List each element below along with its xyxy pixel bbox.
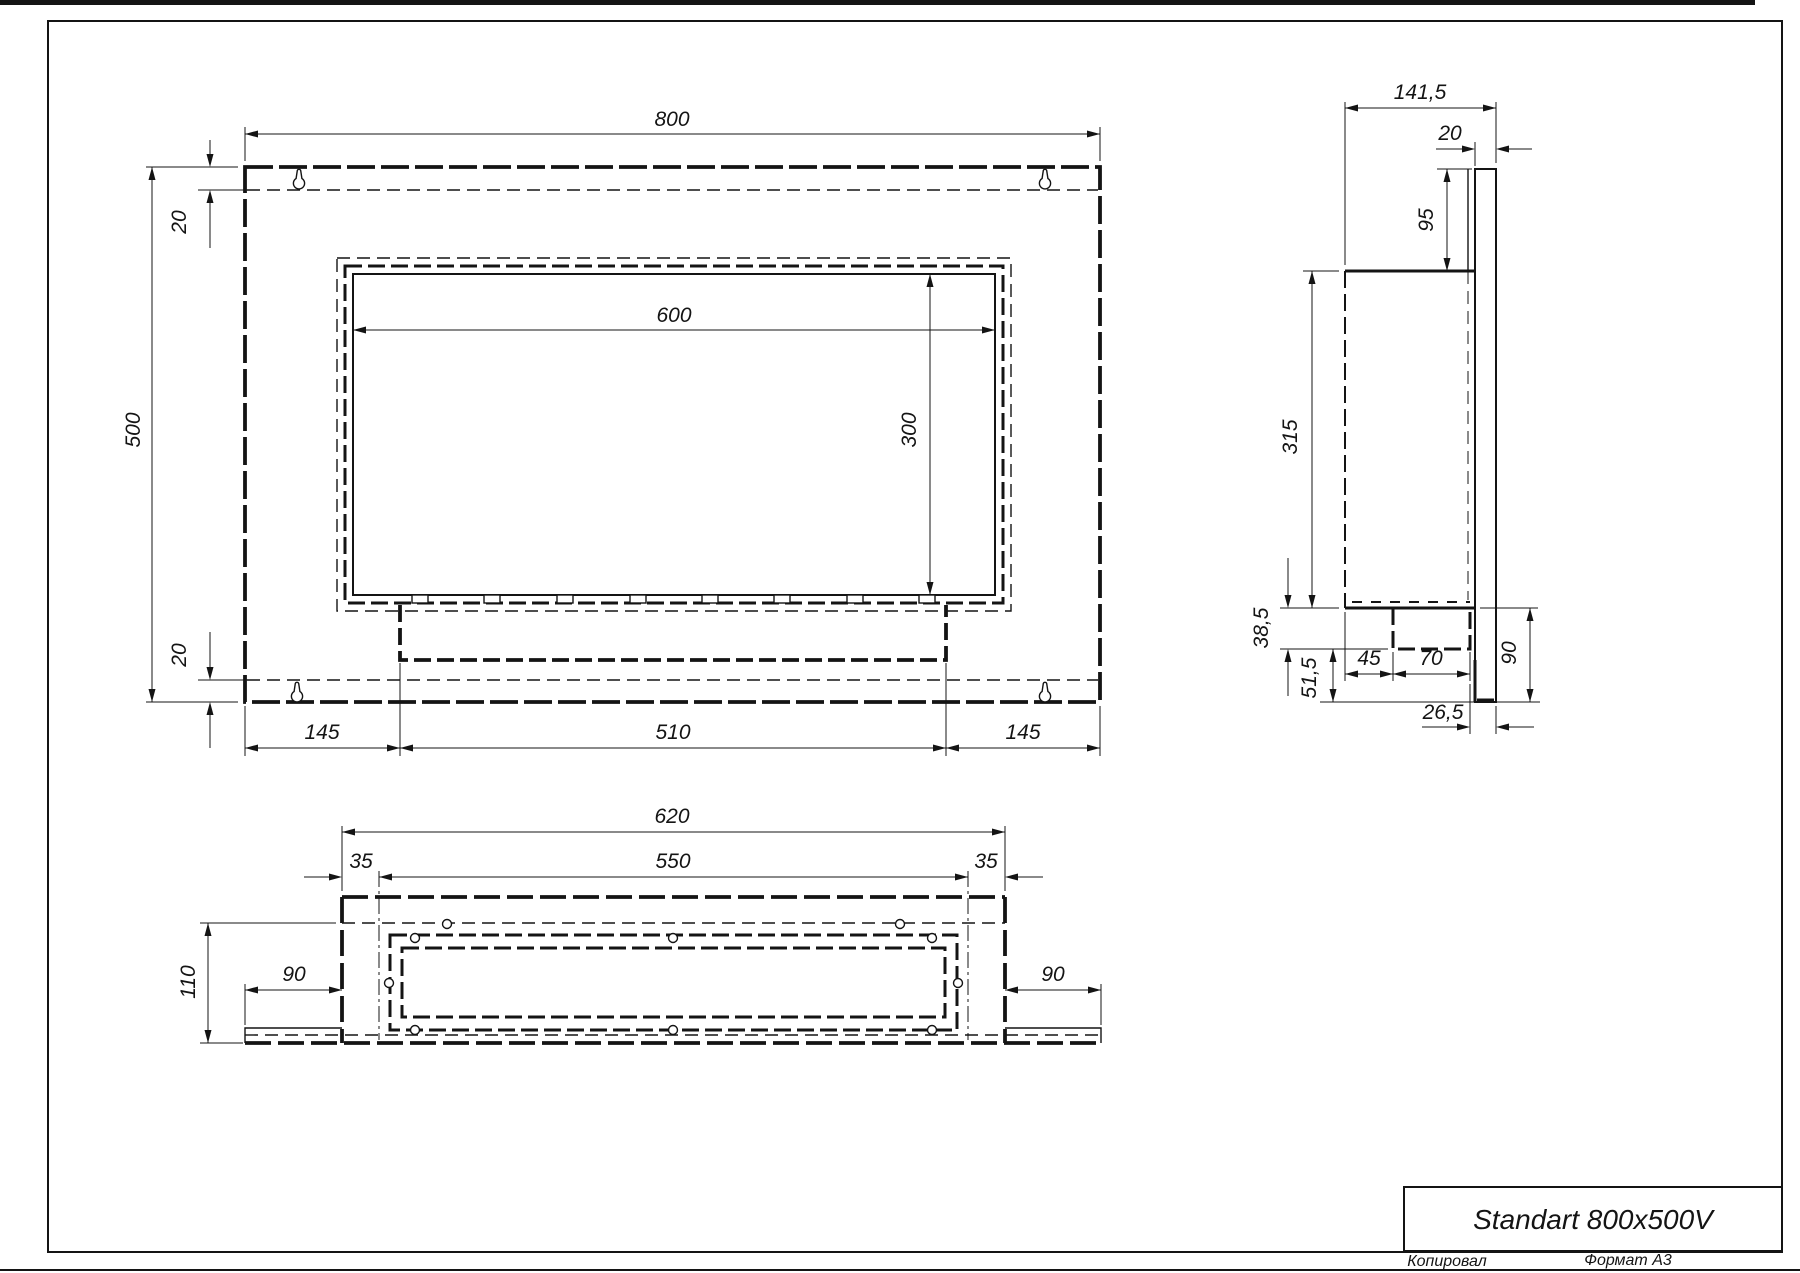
dim-label-145-left: 145 bbox=[304, 721, 339, 744]
drawing-title: Standart 800x500V bbox=[1473, 1204, 1715, 1235]
dim-label-550: 550 bbox=[655, 850, 690, 873]
dim-label-20-top: 20 bbox=[168, 210, 191, 235]
title-block: Standart 800x500V Копировал Формат А3 bbox=[1404, 1187, 1782, 1270]
dim-label-side-90: 90 bbox=[1498, 641, 1521, 665]
drawing-canvas: 800 500 20 20 bbox=[0, 0, 1800, 1273]
dim-side-20: 20 bbox=[1436, 122, 1532, 166]
dim-label-600: 600 bbox=[656, 304, 691, 327]
keyhole-slot-top-right bbox=[1039, 169, 1050, 189]
burner-tray-hidden bbox=[400, 605, 946, 660]
dim-front-20-top: 20 bbox=[168, 140, 247, 248]
copied-label: Копировал bbox=[1407, 1253, 1487, 1270]
dim-label-70: 70 bbox=[1419, 647, 1443, 670]
front-panel-outline bbox=[245, 167, 1100, 702]
dim-front-20-bottom: 20 bbox=[168, 632, 247, 748]
dim-label-141-5: 141,5 bbox=[1394, 81, 1447, 104]
dim-label-26-5: 26,5 bbox=[1422, 701, 1464, 724]
drawing-border bbox=[48, 21, 1782, 1252]
dim-side-90: 90 bbox=[1480, 608, 1538, 702]
front-view: 800 500 20 20 bbox=[122, 108, 1100, 756]
wall-plate bbox=[1475, 169, 1496, 702]
dim-label-90-right: 90 bbox=[1041, 963, 1065, 986]
format-label: Формат А3 bbox=[1584, 1252, 1672, 1269]
dim-label-35-left: 35 bbox=[349, 850, 373, 873]
scan-edge-bar bbox=[0, 0, 1755, 5]
dim-label-90-left: 90 bbox=[282, 963, 306, 986]
dim-label-110: 110 bbox=[177, 965, 200, 999]
dim-front-300: 300 bbox=[898, 274, 934, 595]
dim-side-26-5: 26,5 bbox=[1422, 684, 1534, 734]
dim-side-95: 95 bbox=[1415, 169, 1472, 271]
dim-label-510: 510 bbox=[655, 721, 690, 744]
dim-label-35-right: 35 bbox=[974, 850, 998, 873]
dim-label-315: 315 bbox=[1279, 419, 1302, 454]
dim-label-side-20: 20 bbox=[1437, 122, 1462, 145]
dim-label-145-right: 145 bbox=[1005, 721, 1040, 744]
dim-label-800: 800 bbox=[654, 108, 689, 131]
dim-label-300: 300 bbox=[898, 412, 921, 447]
keyhole-slot-top-left bbox=[293, 169, 304, 189]
dim-label-45: 45 bbox=[1357, 647, 1381, 670]
dim-side-141-5: 141,5 bbox=[1345, 81, 1496, 265]
dim-bottom-90-left: 90 bbox=[245, 963, 342, 1025]
dim-label-620: 620 bbox=[654, 805, 689, 828]
keyhole-slot-bottom-right bbox=[1039, 682, 1050, 702]
keyhole-slot-bottom-left bbox=[291, 682, 302, 702]
dim-label-20-bottom: 20 bbox=[168, 643, 191, 668]
dim-bottom-35-550-35: 35 550 35 bbox=[304, 850, 1043, 881]
dim-front-600: 600 bbox=[353, 304, 995, 334]
bottom-view: 620 35 550 35 110 bbox=[177, 805, 1101, 1043]
dim-side-45-70: 45 70 bbox=[1345, 612, 1470, 681]
dim-label-38-5: 38,5 bbox=[1250, 607, 1273, 648]
dim-bottom-110: 110 bbox=[177, 923, 336, 1043]
dim-front-500: 500 bbox=[122, 167, 238, 702]
dim-front-145-510-145: 145 510 145 bbox=[245, 663, 1100, 756]
tray-hidden-inner bbox=[402, 948, 945, 1017]
dim-label-95: 95 bbox=[1415, 208, 1438, 232]
dim-bottom-620: 620 bbox=[342, 805, 1005, 891]
side-view: 141,5 20 95 315 bbox=[1250, 81, 1540, 734]
dim-label-500: 500 bbox=[122, 412, 145, 447]
drawing-sheet: 800 500 20 20 bbox=[0, 0, 1800, 1273]
dim-label-51-5: 51,5 bbox=[1298, 657, 1321, 698]
side-burner-tray bbox=[1393, 608, 1470, 649]
dim-bottom-90-right: 90 bbox=[1005, 963, 1101, 1025]
dim-side-315: 315 bbox=[1279, 271, 1339, 608]
dim-front-800: 800 bbox=[245, 108, 1100, 161]
